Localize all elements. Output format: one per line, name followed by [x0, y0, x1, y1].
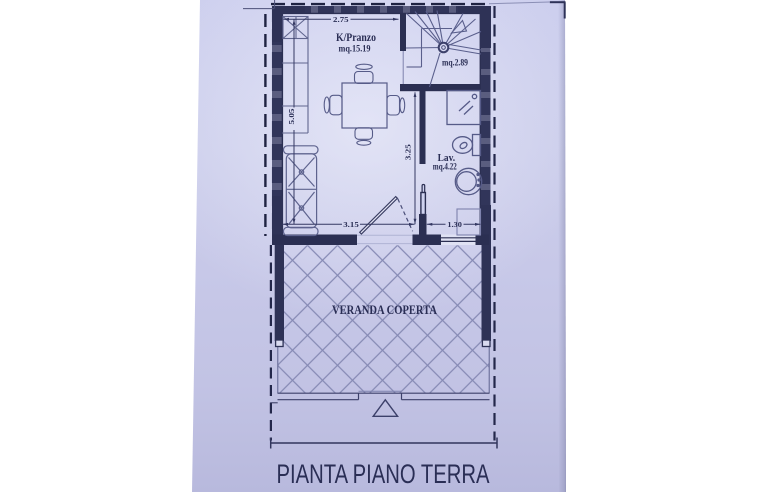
svg-text:VERANDA COPERTA: VERANDA COPERTA	[332, 303, 437, 317]
svg-text:2.75: 2.75	[333, 15, 349, 24]
svg-text:mq.2.89: mq.2.89	[442, 58, 468, 68]
svg-text:3.15: 3.15	[343, 220, 359, 229]
svg-text:PIANTA PIANO TERRA: PIANTA PIANO TERRA	[277, 459, 490, 489]
svg-text:1.30: 1.30	[447, 220, 462, 229]
svg-text:K/Pranzo: K/Pranzo	[336, 30, 376, 44]
svg-text:mq.15.19: mq.15.19	[339, 45, 371, 55]
svg-text:mq.4.22: mq.4.22	[433, 162, 457, 172]
svg-text:5.05: 5.05	[287, 108, 296, 124]
svg-text:3.25: 3.25	[404, 144, 413, 160]
